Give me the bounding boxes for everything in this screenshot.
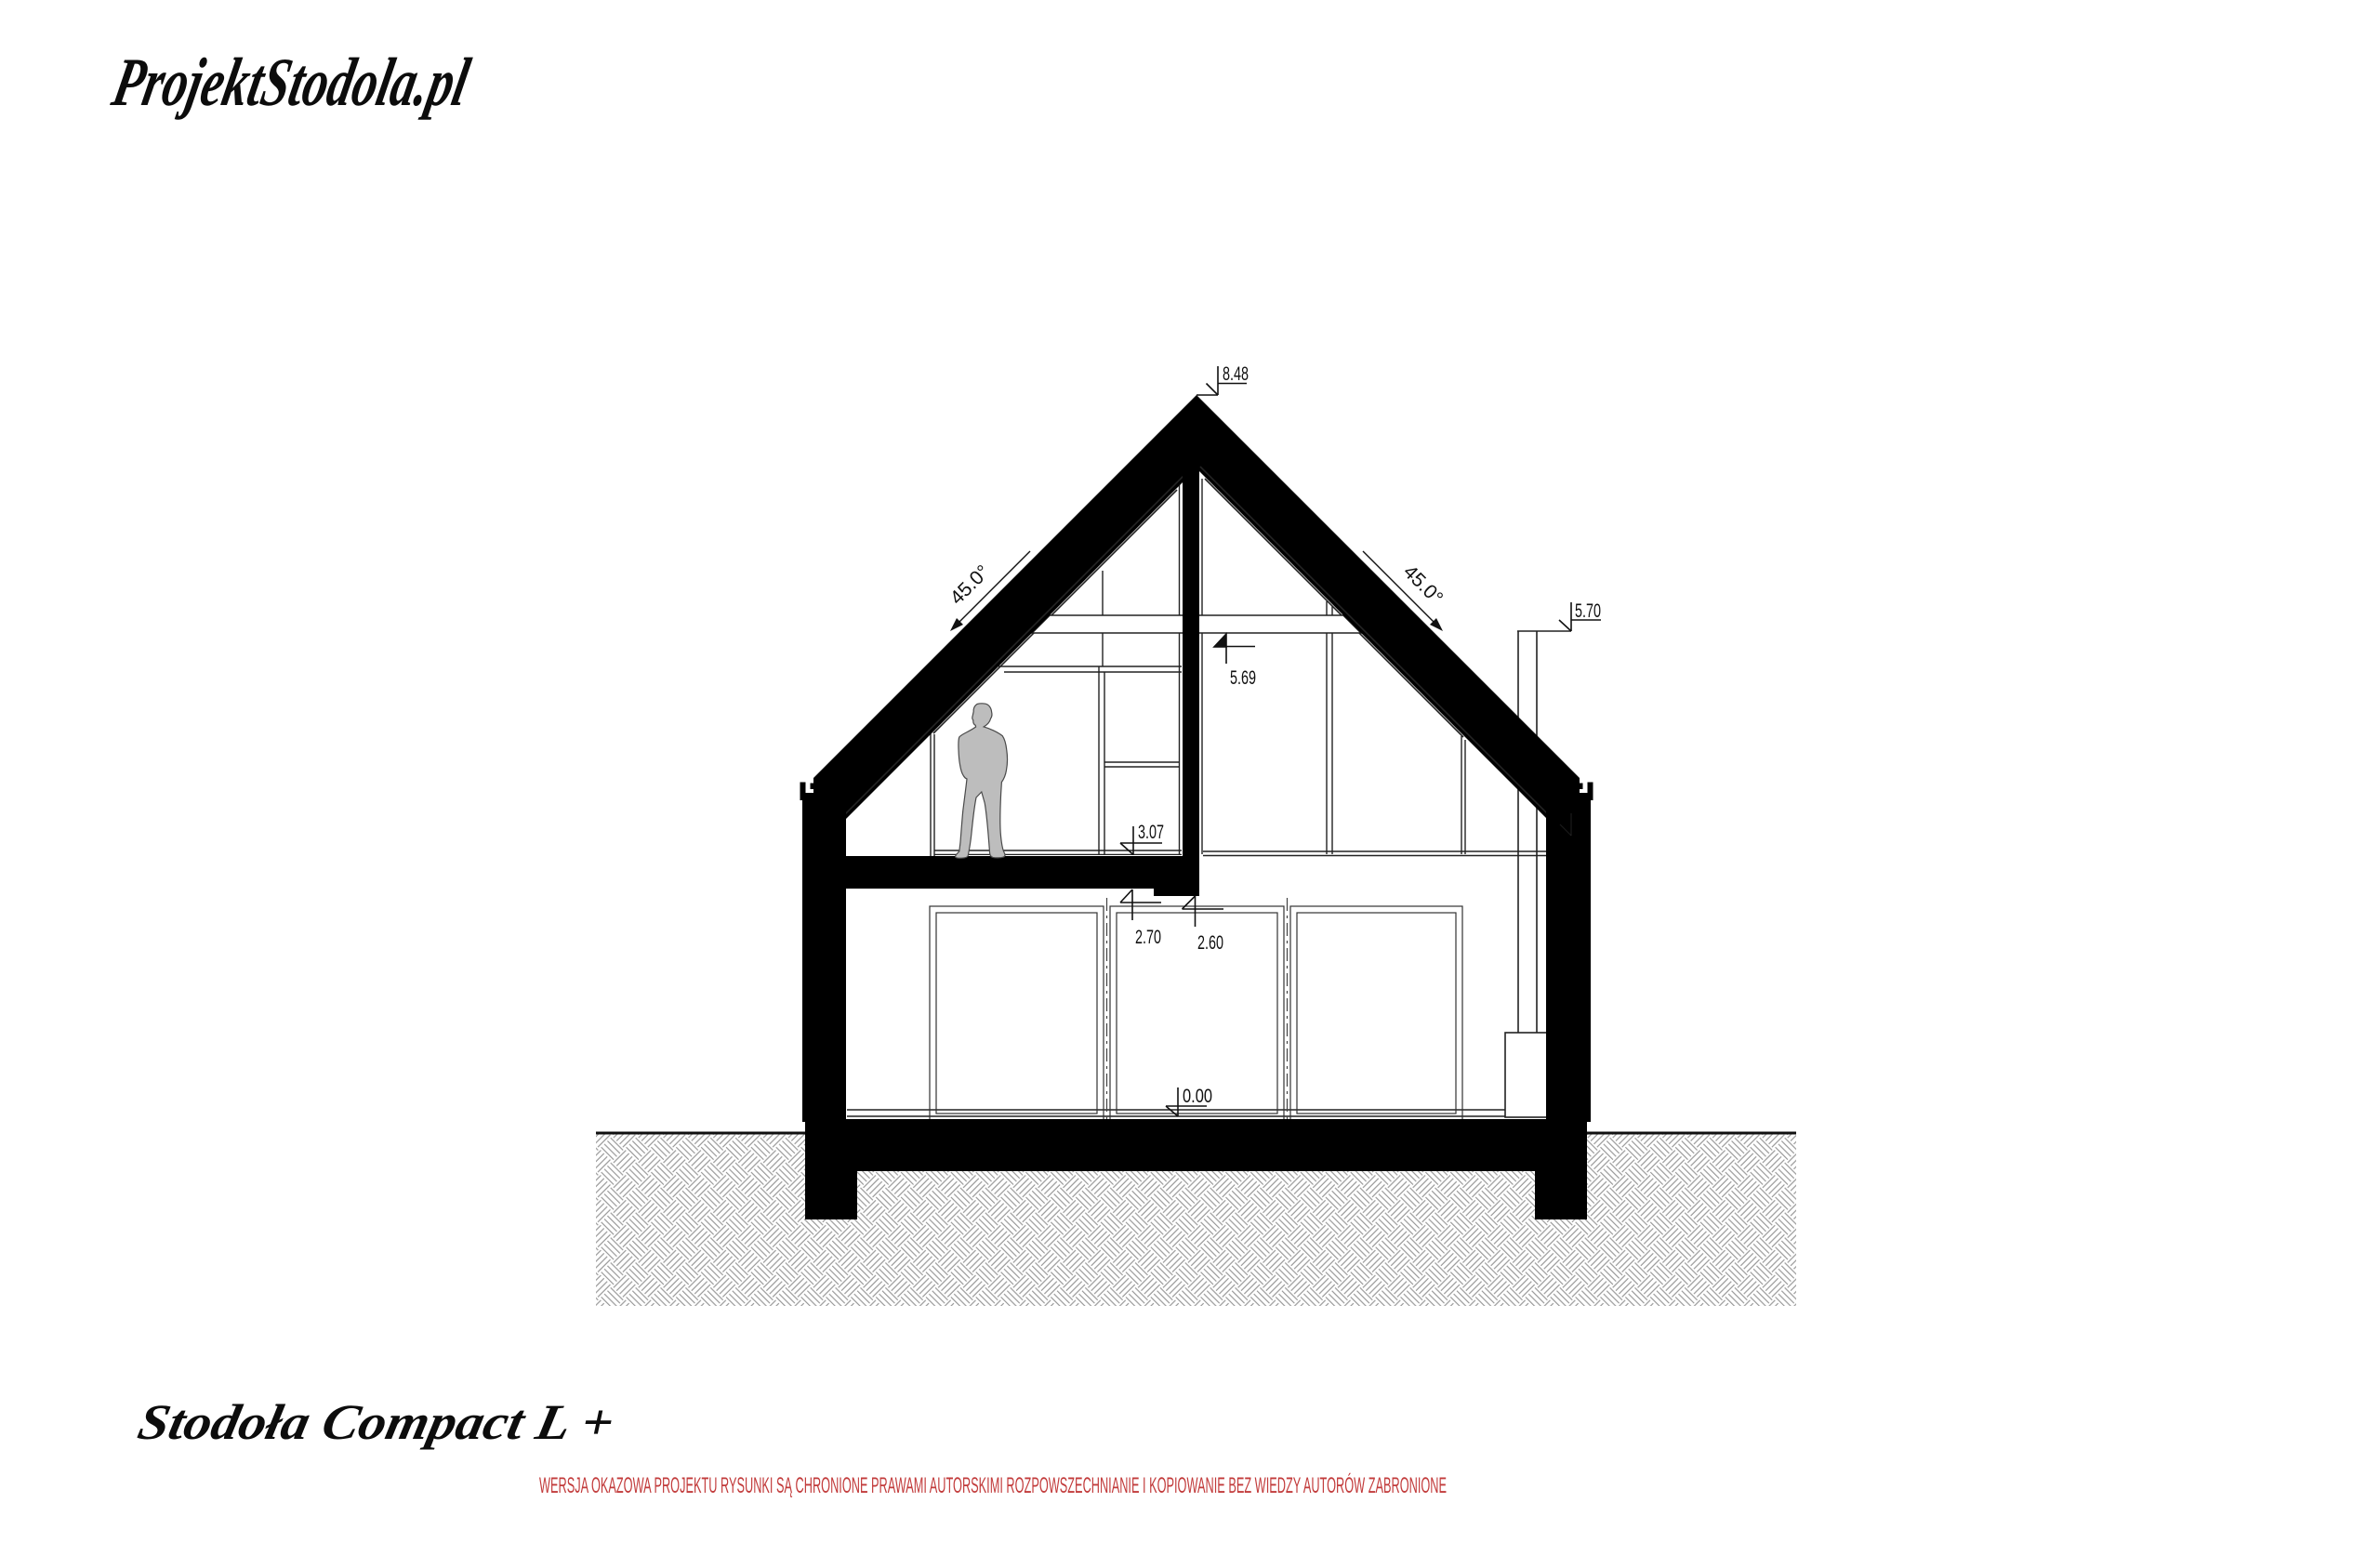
- svg-text:WERSJA OKAZOWA PROJEKTU RYSUNK: WERSJA OKAZOWA PROJEKTU RYSUNKI SĄ CHRON…: [539, 1473, 1447, 1498]
- svg-text:3.07: 3.07: [1138, 822, 1164, 843]
- svg-text:0.00: 0.00: [1183, 1086, 1212, 1107]
- svg-text:45.0°: 45.0°: [946, 561, 995, 610]
- svg-text:45.0°: 45.0°: [1399, 561, 1448, 610]
- svg-text:2.70: 2.70: [1135, 927, 1161, 948]
- svg-text:8.48: 8.48: [1223, 363, 1249, 385]
- svg-text:Stodoła Compact L +: Stodoła Compact L +: [133, 1394, 619, 1450]
- svg-text:ProjektStodola.pl: ProjektStodola.pl: [106, 45, 476, 121]
- svg-text:5.69: 5.69: [1230, 667, 1256, 689]
- svg-text:2.60: 2.60: [1197, 932, 1223, 954]
- svg-text:5.70: 5.70: [1575, 600, 1601, 622]
